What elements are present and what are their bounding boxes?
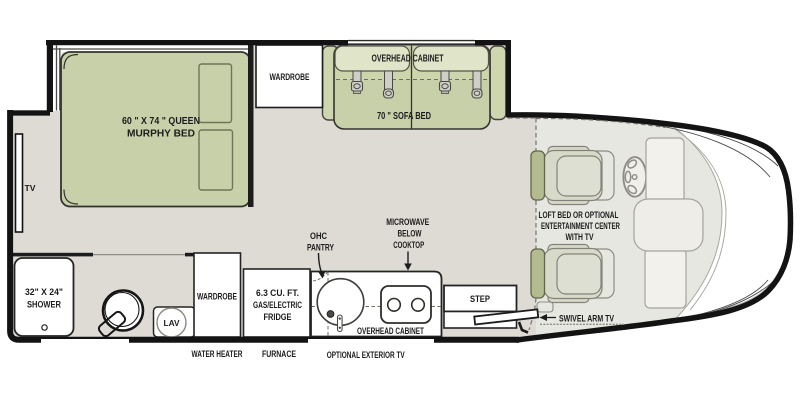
svg-text:LOFT BED OR OPTIONAL: LOFT BED OR OPTIONAL [539, 210, 619, 221]
svg-text:6.3 CU. FT.: 6.3 CU. FT. [256, 288, 299, 299]
svg-text:WATER HEATER: WATER HEATER [192, 349, 243, 360]
svg-text:70 " SOFA BED: 70 " SOFA BED [377, 111, 431, 122]
svg-text:MICROWAVE: MICROWAVE [386, 217, 429, 228]
svg-text:SHOWER: SHOWER [27, 300, 61, 311]
svg-text:SWIVEL ARM TV: SWIVEL ARM TV [559, 314, 614, 325]
svg-text:WARDROBE: WARDROBE [270, 72, 310, 83]
svg-text:OHC: OHC [310, 231, 327, 242]
svg-text:LAV: LAV [164, 318, 180, 328]
svg-text:PANTRY: PANTRY [307, 243, 334, 254]
svg-text:OVERHEAD CABINET: OVERHEAD CABINET [372, 54, 444, 65]
svg-text:FURNACE: FURNACE [262, 349, 296, 360]
svg-text:OVERHEAD CABINET: OVERHEAD CABINET [357, 326, 424, 337]
svg-text:32" X 24": 32" X 24" [25, 287, 63, 298]
svg-text:TV: TV [25, 183, 36, 193]
svg-text:OPTIONAL EXTERIOR TV: OPTIONAL EXTERIOR TV [327, 350, 405, 361]
svg-text:GAS/ELECTRIC: GAS/ELECTRIC [253, 300, 302, 311]
svg-text:STEP: STEP [470, 294, 491, 305]
svg-text:ENTERTAINMENT CENTER: ENTERTAINMENT CENTER [541, 221, 620, 232]
svg-text:WITH TV: WITH TV [566, 232, 594, 243]
svg-text:COOKTOP: COOKTOP [393, 240, 424, 251]
svg-text:FRIDGE: FRIDGE [264, 312, 292, 323]
svg-text:BELOW: BELOW [398, 229, 422, 240]
svg-text:60 " X 74 " QUEEN: 60 " X 74 " QUEEN [122, 116, 200, 127]
svg-text:WARDROBE: WARDROBE [197, 292, 237, 303]
svg-text:MURPHY BED: MURPHY BED [127, 129, 195, 140]
